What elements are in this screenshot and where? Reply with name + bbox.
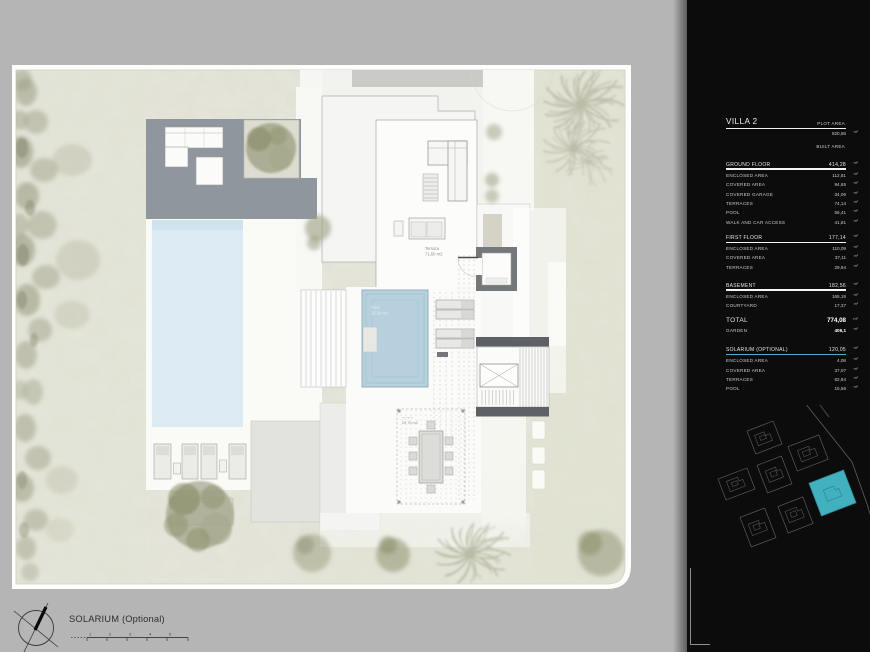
svg-text:15,54 m2: 15,54 m2 (371, 311, 389, 316)
svg-text:5: 5 (169, 632, 172, 637)
svg-text:⌐⌐¬⌐¬: ⌐⌐¬⌐¬ (402, 416, 414, 420)
svg-text:1: 1 (89, 632, 92, 637)
svg-text:29,75 m2: 29,75 m2 (402, 421, 418, 425)
svg-text:Terraza: Terraza (425, 246, 440, 251)
svg-text:3: 3 (129, 632, 132, 637)
svg-text:4: 4 (149, 632, 152, 637)
svg-text:Pool: Pool (371, 305, 379, 310)
svg-text:71,60 m2: 71,60 m2 (425, 252, 443, 257)
svg-text:2: 2 (109, 632, 112, 637)
